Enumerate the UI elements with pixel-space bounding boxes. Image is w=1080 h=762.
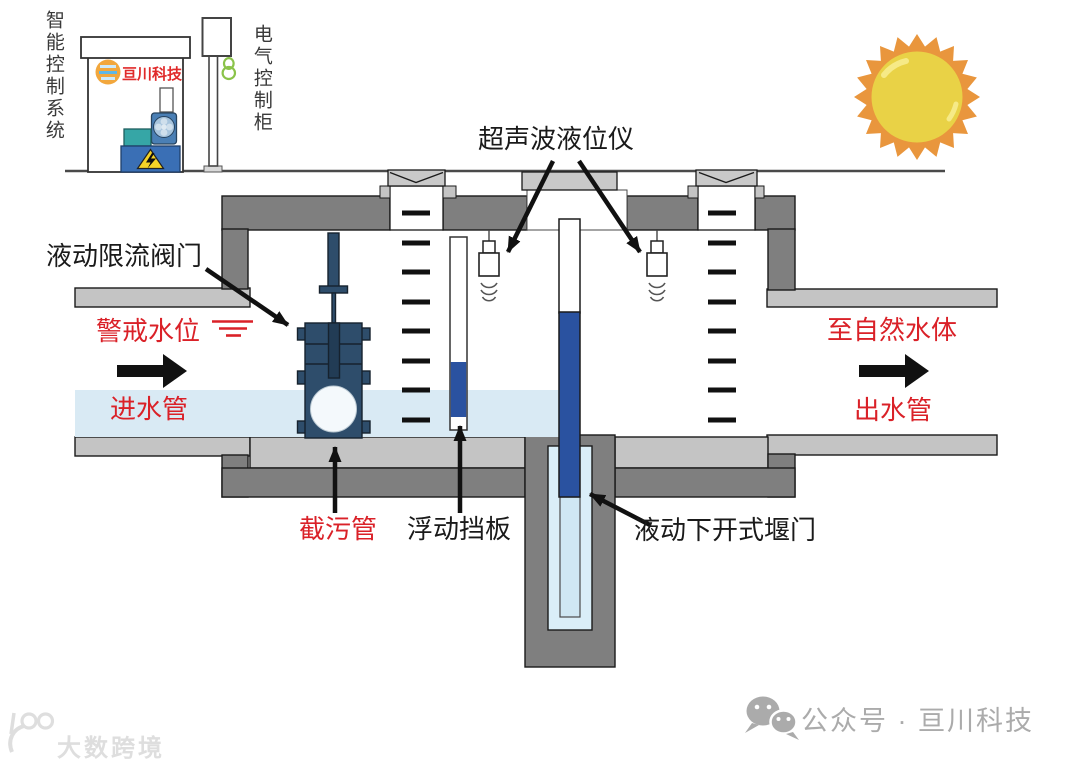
label-weir-gate: 液动下开式堰门: [634, 516, 816, 545]
lightning-warning-icon: [121, 146, 180, 172]
manhole-cover-icon: [388, 170, 445, 186]
label-sewage-interception-pipe: 截污管: [299, 515, 377, 544]
inlet-pipe-top-wall: [75, 288, 250, 307]
diagram-canvas: [0, 0, 1080, 762]
label-inlet-pipe: 进水管: [110, 395, 188, 424]
level-gauge-right: [708, 213, 736, 420]
pump-icon: [152, 113, 177, 144]
weir-gate-guide: [560, 497, 580, 617]
label-warning-water-level: 警戒水位: [96, 317, 200, 346]
electric-pole: [203, 18, 236, 172]
label-electrical-control-cabinet: 电气控制柜: [250, 24, 271, 134]
floor-slab-left: [250, 437, 525, 468]
booth-logo-text: 亘川科技: [122, 63, 182, 84]
sun-icon: [854, 34, 980, 160]
outlet-pipe-top-wall: [767, 289, 997, 307]
label-ultrasonic-level-meter: 超声波液位仪: [478, 125, 634, 154]
ultrasonic-sensor-right: [647, 230, 667, 301]
inlet-pipe-bottom-wall: [75, 437, 250, 456]
gate-valve: [298, 233, 371, 438]
center-cover-plate: [522, 172, 617, 190]
label-outlet-pipe: 出水管: [854, 396, 932, 425]
floating-baffle: [450, 237, 467, 430]
label-floating-baffle: 浮动挡板: [407, 515, 511, 544]
wechat-account-text: 公众号 · 亘川科技: [801, 699, 1034, 738]
label-flow-limiting-valve: 液动限流阀门: [46, 242, 202, 271]
label-smart-control-system: 智能控制系统: [42, 10, 63, 142]
wechat-icon: [745, 697, 799, 741]
control-booth: [81, 37, 190, 172]
outlet-pipe-bottom-wall: [767, 435, 997, 455]
outlet-flow-arrow-icon: [859, 354, 929, 388]
watermark-text: 大数跨境: [57, 728, 165, 762]
warning-level-symbol: [212, 322, 253, 336]
manhole-cover-icon: [696, 170, 757, 186]
watermark-logo-icon: [10, 713, 52, 752]
ultrasonic-sensor-left: [479, 230, 499, 301]
level-gauge-left: [402, 213, 430, 420]
booth-logo-icon: [96, 60, 121, 85]
weir-gate: [559, 219, 580, 497]
booth-poster: [160, 88, 173, 112]
floor-slab-right: [615, 437, 768, 468]
inlet-flow-arrow-icon: [117, 354, 187, 388]
cable-coil-icon: [223, 58, 235, 79]
label-to-natural-water-body: 至自然水体: [827, 316, 957, 345]
diagram-page: 智能控制系统 电气控制柜 亘川科技 超声波液位仪 液动限流阀门 警戒水位 进水管…: [0, 0, 1080, 762]
teal-box: [124, 129, 151, 146]
